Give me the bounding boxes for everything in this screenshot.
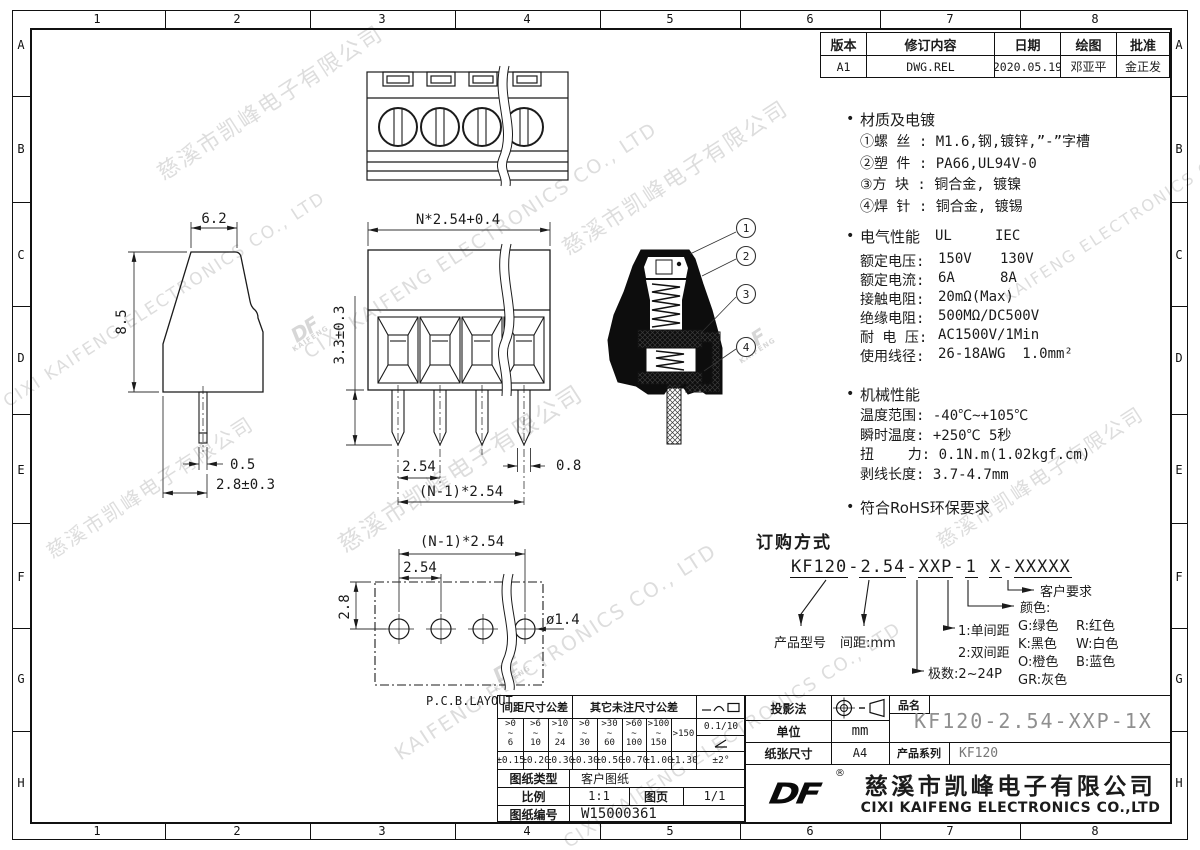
top-view	[367, 66, 568, 186]
angle-tolerance-value: ±2°	[696, 751, 746, 769]
projection-label: 投影法	[746, 696, 831, 720]
section-view: 1 2 3 4	[608, 219, 756, 445]
dim-body-height: 8.5	[114, 309, 130, 334]
pitch-tolerance-header: 间距尺寸公差	[498, 696, 572, 718]
tolerance-table: 间距尺寸公差 其它未注尺寸公差 >0~6 >6~10 >10~24 >0~30 …	[497, 695, 745, 822]
dim-top-width: 6.2	[201, 211, 226, 227]
balloon-2: 2	[743, 250, 750, 263]
balloon-1: 1	[743, 222, 750, 235]
company-logo: DF	[751, 775, 838, 813]
range-cell-last: >150	[671, 718, 696, 751]
solder-pin	[199, 386, 207, 452]
dim-hole-dia: ø1.4	[546, 612, 580, 628]
range-cell: >100~150	[646, 718, 671, 751]
break-line	[501, 574, 516, 690]
drawing-number-value: W15000361	[569, 805, 758, 823]
unit-value: mm	[831, 720, 889, 742]
dim-front-height: 3.3±0.3	[332, 305, 348, 364]
title-block: 品名 投影法 KF120-2.54-XXP-1X 单位 mm 纸张尺寸 A4 产…	[745, 695, 1170, 822]
pcb-layout-view: (N-1)*2.54 2.54 2.8 ø1.4 P.C.B.LAYOUT	[337, 534, 580, 708]
scale-value: 1:1	[569, 787, 629, 805]
drawing-sheet: 慈溪市凯峰电子有限公司 CIXI KAIFENG ELECTRONICS CO.…	[0, 0, 1200, 850]
dimension	[346, 222, 550, 502]
dim-pin-w: 0.8	[556, 458, 581, 474]
range-cell: >60~100	[622, 718, 646, 751]
dim-front-width: N*2.54+0.4	[416, 212, 500, 228]
side-view: 6.2 8.5 0.5 2.8±0.3	[114, 211, 275, 498]
tol-value: ±0.15	[498, 751, 523, 769]
doc-type-label: 图纸类型	[498, 769, 569, 787]
dimension	[128, 222, 237, 498]
paper-size-value: A4	[831, 742, 889, 764]
other-tolerance-header: 其它未注尺寸公差	[572, 696, 696, 718]
sheet-label: 图页	[629, 787, 683, 805]
registered-mark: ®	[834, 766, 846, 780]
projection-icon	[831, 696, 889, 720]
sheet-value: 1/1	[683, 787, 746, 805]
range-cell: >0~6	[498, 718, 523, 751]
series-label: 产品系列	[889, 742, 949, 764]
tol-value: ±0.30	[572, 751, 597, 769]
front-view: N*2.54+0.4 3.3±0.3 2.54 0.8 (N-1)*2.54	[332, 212, 581, 505]
wire-opening	[378, 317, 544, 383]
screw-head	[379, 108, 543, 146]
tol-value: ±0.20	[523, 751, 548, 769]
dim-span: (N-1)*2.54	[419, 484, 503, 500]
doc-type-value: 客户图纸	[569, 769, 758, 787]
balloon-3: 3	[743, 288, 750, 301]
angle-icon	[696, 735, 746, 751]
dim-pin-length: 2.8±0.3	[216, 477, 275, 493]
dim-pcb-offset: 2.8	[337, 594, 353, 619]
tol-value: ±1.30	[671, 751, 696, 769]
screw-slot	[656, 260, 672, 274]
flatness-value: 0.1/10	[696, 718, 746, 735]
first-angle-projection-icon	[832, 697, 888, 719]
part-number-value: KF120-2.54-XXP-1X	[896, 700, 1171, 742]
balloon-4: 4	[743, 341, 750, 354]
solder-pin-section	[667, 384, 681, 444]
range-cell: >0~30	[572, 718, 597, 751]
clamp-block-lower	[638, 372, 702, 384]
dimension	[350, 549, 564, 629]
company-name-cn: 慈溪市凯峰电子有限公司	[850, 768, 1171, 800]
range-cell: >6~10	[523, 718, 548, 751]
form-tolerance-icons	[696, 696, 746, 718]
wire-slot	[383, 72, 541, 86]
scale-label: 比例	[498, 787, 569, 805]
tol-value: ±0.30	[548, 751, 572, 769]
drawing-number-label: 图纸编号	[498, 805, 569, 823]
unit-label: 单位	[746, 720, 831, 742]
paper-size-label: 纸张尺寸	[746, 742, 831, 764]
range-cell: >10~24	[548, 718, 572, 751]
straightness-flatness-icons	[701, 700, 741, 714]
break-line	[497, 66, 512, 186]
dim-pitch: 2.54	[402, 459, 436, 475]
tol-value: ±0.70	[622, 751, 646, 769]
dim-pin-width: 0.5	[230, 457, 255, 473]
clamp-block	[638, 330, 702, 348]
dim-pcb-span: (N-1)*2.54	[420, 534, 504, 550]
tol-value: ±1.00	[646, 751, 671, 769]
dim-pcb-pitch: 2.54	[403, 560, 437, 576]
screw-dot	[677, 262, 681, 266]
tol-value: ±0.50	[597, 751, 622, 769]
series-value: KF120	[949, 742, 1181, 764]
range-cell: >30~60	[597, 718, 622, 751]
company-name-en: CIXI KAIFENG ELECTRONICS CO.,LTD	[850, 798, 1171, 818]
ordering-diagram-lines	[801, 580, 1034, 671]
